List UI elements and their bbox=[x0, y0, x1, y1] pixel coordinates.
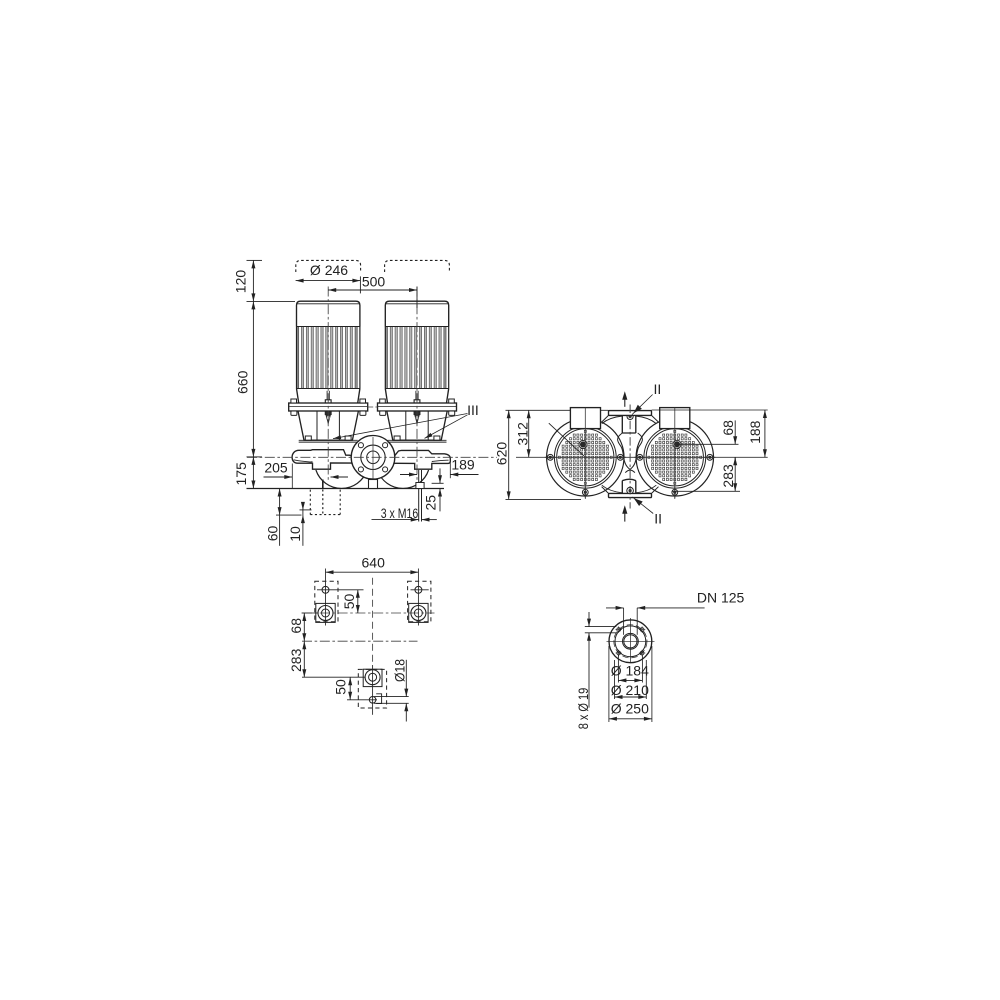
svg-text:312: 312 bbox=[514, 422, 530, 446]
svg-text:II: II bbox=[654, 511, 662, 527]
svg-text:500: 500 bbox=[362, 274, 386, 290]
svg-text:10: 10 bbox=[287, 526, 303, 542]
svg-text:60: 60 bbox=[265, 526, 281, 542]
svg-text:25: 25 bbox=[423, 495, 439, 511]
svg-text:205: 205 bbox=[264, 460, 288, 476]
svg-text:50: 50 bbox=[333, 679, 349, 695]
svg-text:50: 50 bbox=[341, 594, 357, 610]
svg-text:283: 283 bbox=[720, 464, 736, 488]
svg-text:Ø 250: Ø 250 bbox=[611, 701, 649, 717]
svg-text:68: 68 bbox=[720, 420, 736, 436]
svg-text:8 x Ø 19: 8 x Ø 19 bbox=[575, 688, 591, 730]
svg-text:Ø 184: Ø 184 bbox=[611, 663, 649, 679]
svg-text:620: 620 bbox=[494, 442, 510, 466]
svg-text:DN 125: DN 125 bbox=[697, 590, 745, 606]
svg-text:II: II bbox=[654, 381, 662, 397]
svg-text:660: 660 bbox=[234, 370, 250, 394]
svg-text:188: 188 bbox=[747, 420, 763, 444]
svg-text:Ø 210: Ø 210 bbox=[611, 682, 649, 698]
svg-text:III: III bbox=[467, 402, 479, 418]
svg-text:Ø 246: Ø 246 bbox=[310, 262, 348, 278]
svg-text:175: 175 bbox=[233, 462, 249, 486]
svg-text:283: 283 bbox=[288, 648, 304, 672]
svg-text:68: 68 bbox=[288, 618, 304, 634]
svg-text:640: 640 bbox=[362, 555, 386, 571]
svg-text:189: 189 bbox=[451, 456, 475, 472]
svg-text:120: 120 bbox=[232, 270, 248, 294]
svg-text:Ø18: Ø18 bbox=[391, 659, 407, 682]
